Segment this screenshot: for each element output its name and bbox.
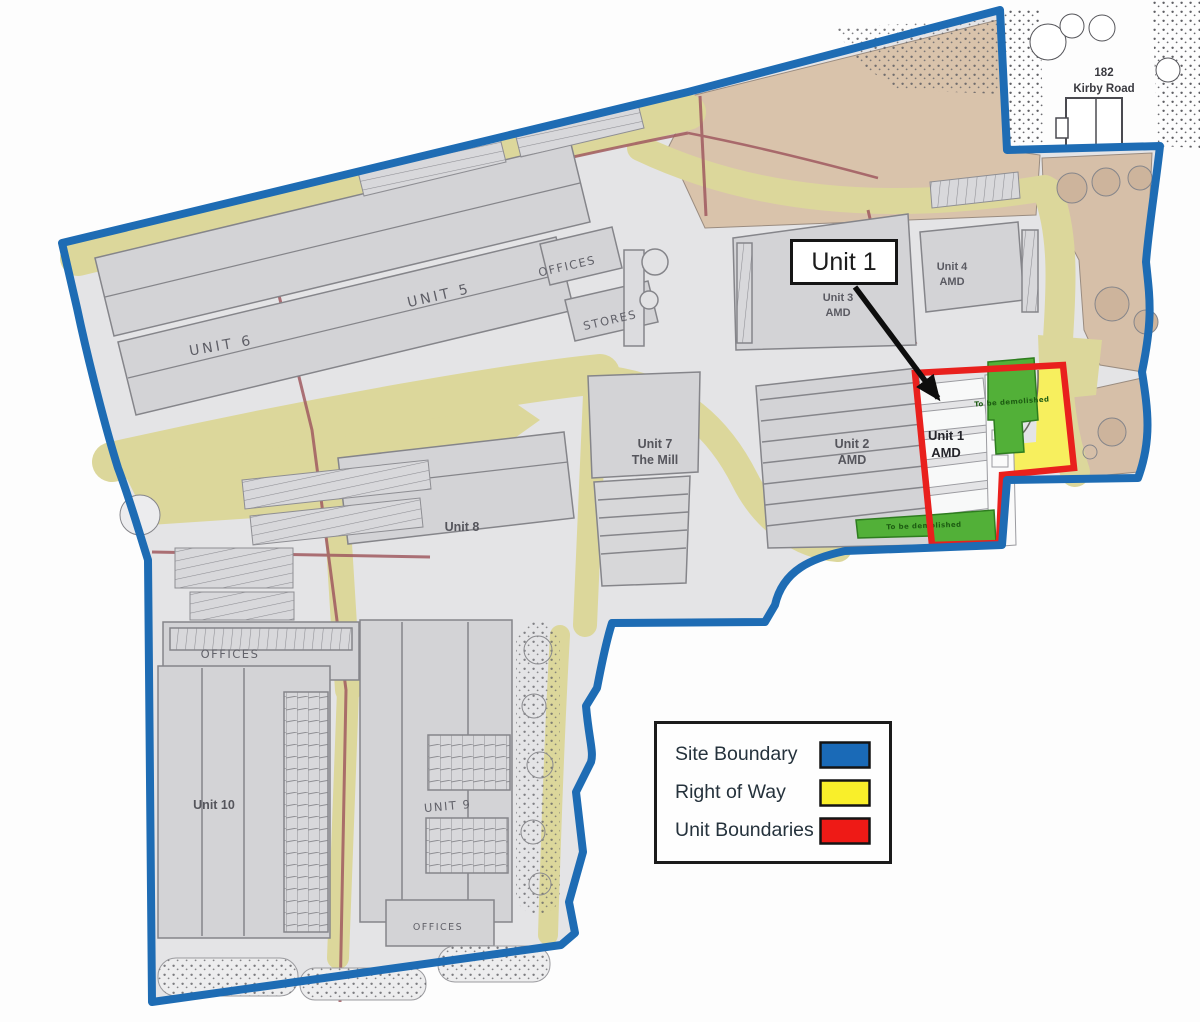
kirby-road-plot: 182 Kirby Road bbox=[1004, 0, 1200, 150]
label-unit-10: Unit 10 bbox=[193, 798, 235, 812]
legend-row-unit-boundaries: Unit Boundaries bbox=[675, 817, 871, 845]
label-offices-bottom: OFFICES bbox=[413, 922, 463, 933]
legend-row-site-boundary: Site Boundary bbox=[675, 741, 871, 769]
legend-swatch-unit-boundaries bbox=[819, 817, 871, 845]
legend-swatch-right-of-way bbox=[819, 779, 871, 807]
legend-swatch-site-boundary bbox=[819, 741, 871, 769]
site-plan-map: 182 Kirby Road To be demolished To be de… bbox=[0, 0, 1200, 1022]
kirby-house bbox=[1066, 98, 1122, 146]
legend-label-unit-boundaries: Unit Boundaries bbox=[675, 819, 814, 842]
legend: Site Boundary Right of Way Unit Boundari… bbox=[654, 721, 892, 864]
label-unit-8: Unit 8 bbox=[445, 520, 480, 534]
legend-row-right-of-way: Right of Way bbox=[675, 779, 871, 807]
unit1-callout: Unit 1 bbox=[790, 239, 898, 285]
legend-label-site-boundary: Site Boundary bbox=[675, 743, 798, 766]
unit1-callout-label: Unit 1 bbox=[811, 248, 876, 277]
site-plan-page: 182 Kirby Road To be demolished To be de… bbox=[0, 0, 1200, 1022]
legend-label-right-of-way: Right of Way bbox=[675, 781, 786, 804]
label-kirby-number: 182 bbox=[1094, 67, 1113, 79]
building-unit-4 bbox=[920, 222, 1024, 312]
label-offices-mid: OFFICES bbox=[201, 647, 260, 661]
label-kirby-road: Kirby Road bbox=[1073, 83, 1134, 95]
